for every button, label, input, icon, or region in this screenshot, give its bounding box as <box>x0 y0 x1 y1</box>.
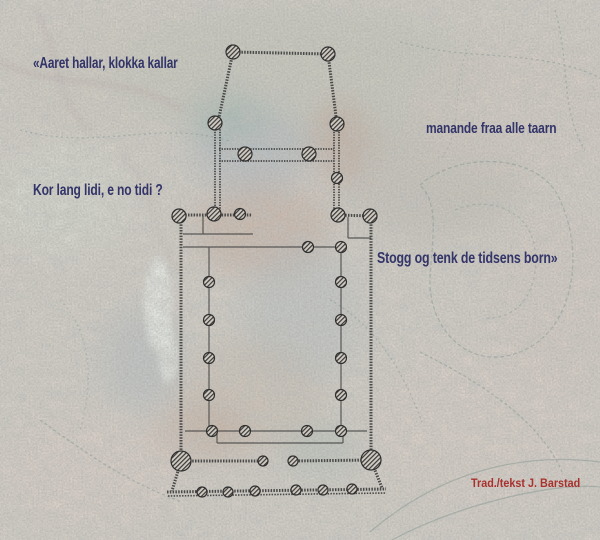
quote-line-4: Stogg og tenk de tidsens born» <box>377 250 558 268</box>
background-and-plan-svg <box>0 0 600 540</box>
artwork-canvas: «Aaret hallar, klokka kallar manande fra… <box>0 0 600 540</box>
quote-line-3: Kor lang lidi, e no tidi ? <box>33 182 163 200</box>
quote-line-1: «Aaret hallar, klokka kallar <box>33 55 178 73</box>
marbled-background <box>0 0 600 540</box>
quote-line-2: manande fraa alle taarn <box>426 120 556 137</box>
credit-text: Trad./tekst J. Barstad <box>471 476 580 490</box>
